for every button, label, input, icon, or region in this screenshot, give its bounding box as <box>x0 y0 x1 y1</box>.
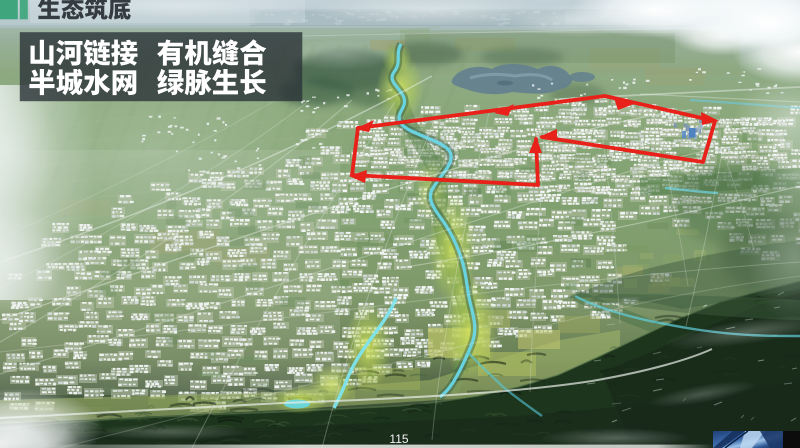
svg-text:115: 115 <box>389 432 408 446</box>
